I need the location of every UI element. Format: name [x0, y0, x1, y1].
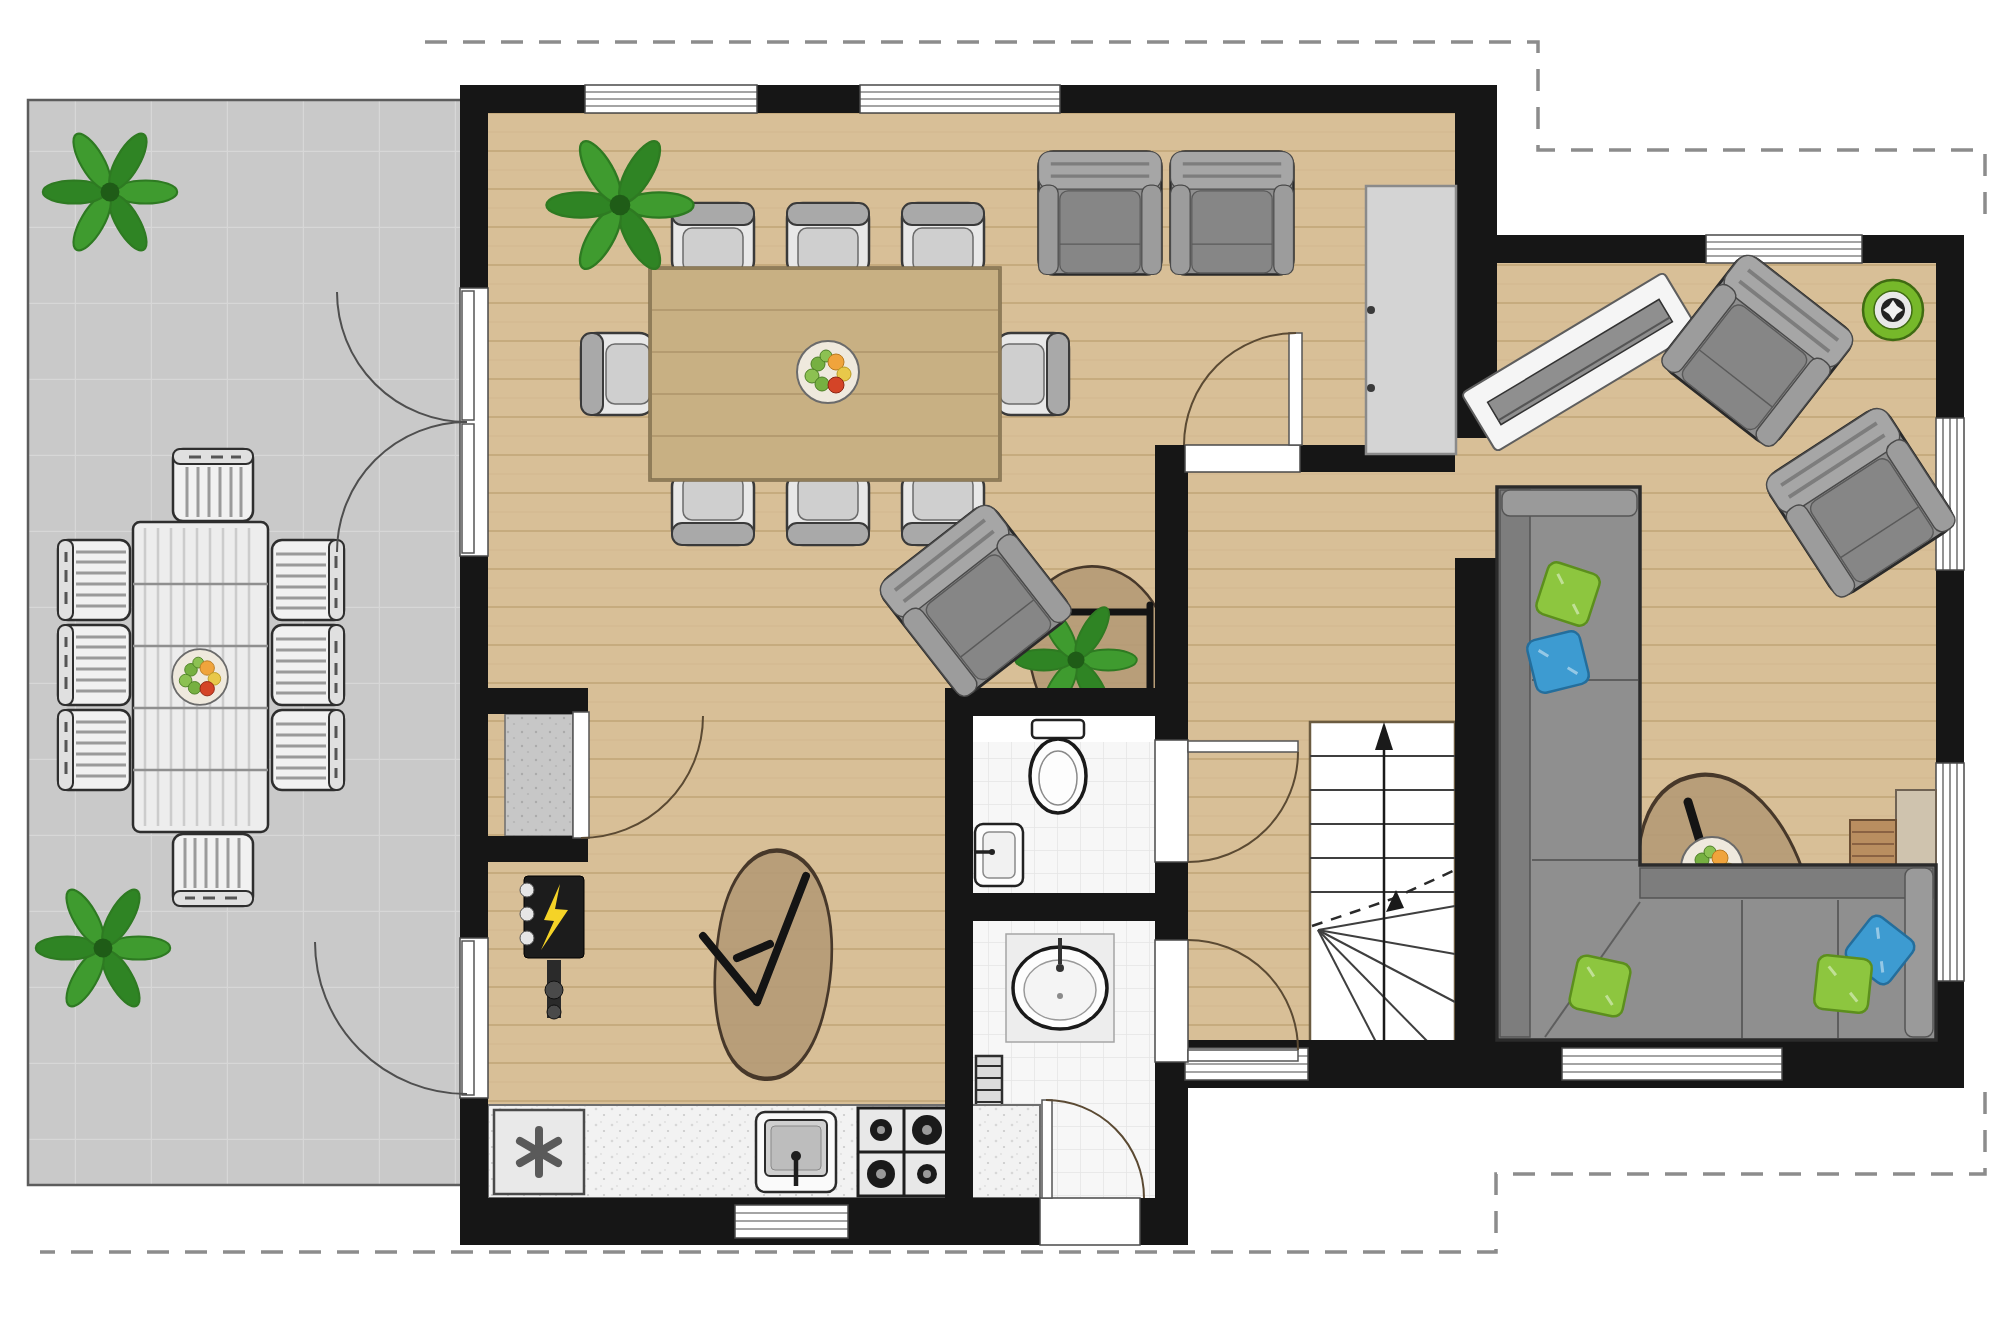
wc-toilet: [1030, 720, 1086, 813]
outdoor-chair: [58, 540, 130, 620]
dining-chair: [672, 471, 754, 545]
pillow-green: [1568, 954, 1632, 1018]
window: [735, 1205, 848, 1238]
tall-cabinet: [1366, 186, 1456, 454]
washing-machine: [494, 1110, 584, 1194]
window: [1706, 235, 1862, 263]
fruit-bowl: [797, 341, 859, 403]
utility-closet: [505, 714, 573, 836]
outdoor-chair: [272, 540, 344, 620]
window: [860, 85, 1060, 113]
gas-stove: [858, 1108, 950, 1196]
green-round-rug: [1863, 280, 1923, 340]
terrace: [28, 100, 478, 1185]
floor-plan-canvas: [0, 0, 2000, 1333]
outdoor-chair: [173, 449, 253, 521]
outdoor-chair: [58, 710, 130, 790]
outdoor-chair: [272, 625, 344, 705]
toilet-room: [973, 716, 1155, 893]
window: [1562, 1048, 1782, 1080]
dining-chair: [787, 471, 869, 545]
kitchen-sink: [756, 1112, 836, 1192]
armchair: [1039, 152, 1162, 275]
dining-chair: [902, 203, 984, 277]
corner-hand-basin: [975, 824, 1023, 886]
outdoor-chair: [58, 625, 130, 705]
staircase: [1310, 722, 1455, 1042]
outdoor-chair: [272, 710, 344, 790]
window: [1936, 763, 1964, 981]
dining-chair: [995, 333, 1069, 415]
pillow-green: [1813, 954, 1872, 1013]
window: [585, 85, 757, 113]
armchair: [1171, 152, 1294, 275]
dining-chair: [581, 333, 655, 415]
outdoor-chair: [173, 834, 253, 906]
pillow-blue: [1525, 629, 1590, 694]
dining-chair: [787, 203, 869, 277]
fruit-bowl: [172, 649, 228, 705]
round-washbasin: [1006, 934, 1114, 1042]
